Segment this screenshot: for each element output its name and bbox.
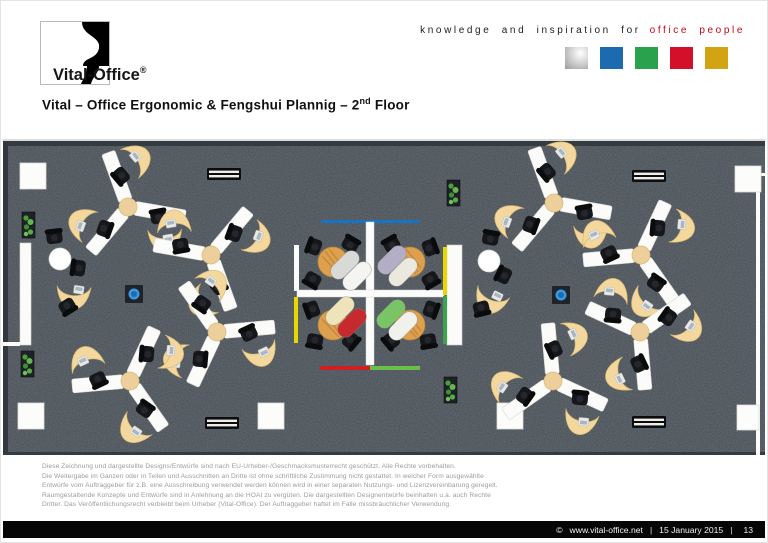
- tagline-black: knowledge and inspiration for: [420, 25, 640, 36]
- partition-horizontal: [297, 290, 444, 297]
- pillar: [735, 166, 761, 192]
- svg-text:Vital-Office®: Vital-Office®: [53, 65, 147, 84]
- footer-bar: © www.vital-office.net | 15 January 2015…: [3, 521, 765, 538]
- footer-separator: |: [730, 525, 732, 535]
- green-accent-bottom: [370, 366, 420, 370]
- bench: [632, 416, 666, 428]
- bench: [632, 170, 666, 182]
- legal-line: Diese Zeichnung und dargestellte Designs…: [42, 462, 742, 472]
- title-text: Vital – Office Ergonomic & Fengshui Plan…: [42, 98, 359, 113]
- green-accent-right: [443, 296, 447, 344]
- swatch-blue: [600, 47, 623, 69]
- plant: [447, 180, 460, 206]
- footer-separator: |: [650, 525, 652, 535]
- swatch-silver: [565, 47, 588, 69]
- brand-name: Vital-Office: [53, 66, 140, 84]
- plant: [21, 351, 34, 377]
- pillar: [20, 163, 46, 189]
- legal-line: Dritter. Das Veröffentlichungsrecht verb…: [42, 500, 742, 510]
- pillar: [18, 403, 44, 429]
- bench: [207, 168, 241, 180]
- page: Vital-Office® knowledge and inspiration …: [0, 0, 768, 543]
- plant: [22, 212, 35, 238]
- title-superscript: nd: [359, 96, 370, 106]
- vital-office-logo: Vital-Office®: [40, 21, 175, 87]
- cabinet-right: [447, 245, 462, 345]
- yellow-accent-right: [443, 247, 447, 295]
- tagline: knowledge and inspiration foroffice peop…: [420, 25, 745, 36]
- tagline-red: office people: [650, 25, 745, 36]
- left-wall-stub: [3, 342, 20, 346]
- water-feature: [125, 285, 143, 303]
- footer-page-number: 13: [743, 525, 753, 535]
- pillar: [258, 403, 284, 429]
- legal-line: Entwürfe vom Auftraggeber für z.B. eine …: [42, 481, 742, 491]
- floor-plan: [3, 139, 765, 457]
- registered-mark: ®: [140, 65, 147, 75]
- bench: [205, 417, 239, 429]
- footer-copyright: ©: [556, 525, 562, 535]
- footer-date: 15 January 2015: [659, 525, 723, 535]
- legal-text: Diese Zeichnung und dargestellte Designs…: [42, 462, 742, 510]
- swatch-gold: [705, 47, 728, 69]
- swatch-red: [670, 47, 693, 69]
- water-feature: [552, 286, 570, 304]
- legal-line: Die Weitergabe im Ganzen oder in Teilen …: [42, 472, 742, 482]
- swatch-green: [635, 47, 658, 69]
- page-title: Vital – Office Ergonomic & Fengshui Plan…: [42, 96, 410, 113]
- red-accent-bottom: [320, 366, 370, 370]
- pillar: [737, 405, 759, 430]
- partition-left: [294, 245, 299, 291]
- plant: [444, 377, 457, 403]
- footer-url: www.vital-office.net: [570, 525, 643, 535]
- left-wall: [20, 243, 31, 345]
- legal-line: Raumgestaltende Konzepte und Entwürfe si…: [42, 491, 742, 501]
- color-swatches: [565, 47, 728, 69]
- title-suffix: Floor: [371, 98, 410, 113]
- yellow-accent-left: [294, 297, 298, 343]
